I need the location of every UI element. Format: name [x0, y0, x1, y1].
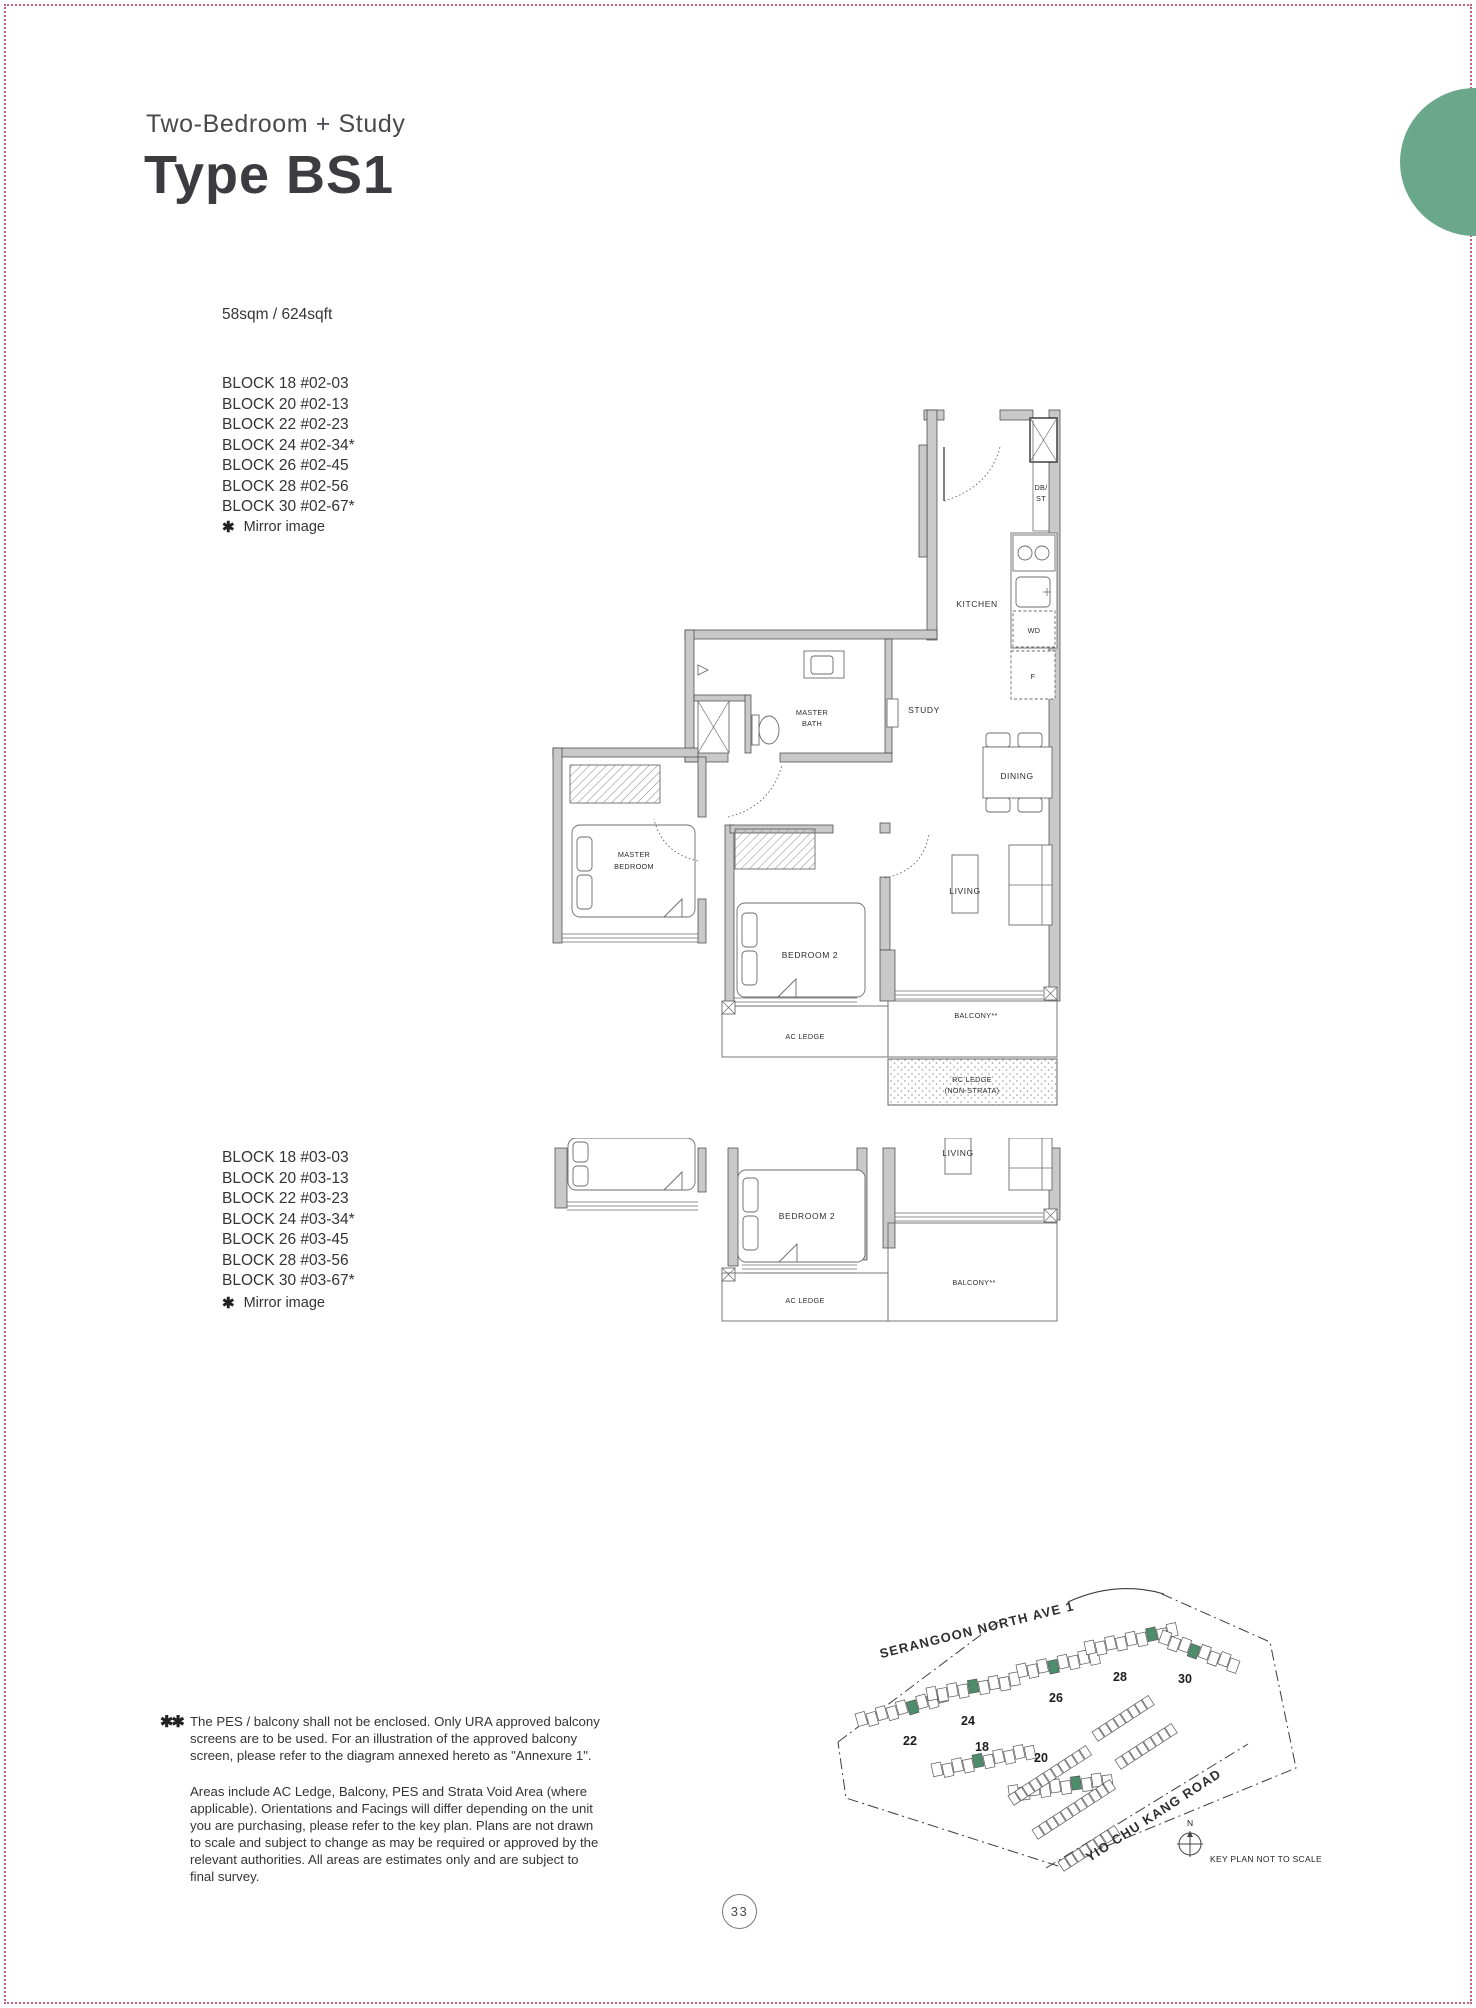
- label-fridge: F: [1031, 672, 1036, 681]
- mirror-note-text: Mirror image: [244, 519, 325, 535]
- pillow: [743, 1216, 758, 1250]
- room-label-kitchen: KITCHEN: [956, 599, 998, 609]
- toilet-tank: [752, 715, 759, 745]
- master-bed-partial: [568, 1138, 695, 1190]
- block-stack-item: BLOCK 26 #02-45: [222, 456, 355, 477]
- svg-text:28: 28: [1113, 1670, 1127, 1684]
- label-rc-ledge-2: (NON-STRATA): [945, 1086, 1000, 1095]
- coffee-table: [952, 855, 978, 913]
- page-number: 33: [731, 1904, 748, 1919]
- living-furniture: [952, 845, 1052, 925]
- unit-area: 58sqm / 624sqft: [222, 306, 332, 324]
- block-stack-list-level2: BLOCK 18 #02-03 BLOCK 20 #02-13 BLOCK 22…: [222, 374, 355, 518]
- room-label-master-bath-2: BATH: [802, 719, 822, 728]
- entry-door-arc: [944, 447, 1000, 501]
- double-asterisk-marker: ✱✱: [160, 1712, 183, 1732]
- road-label-serangoon: SERANGOON NORTH AVE 1: [878, 1598, 1076, 1661]
- compass-icon: N: [1177, 1818, 1203, 1857]
- label-rc-ledge-1: RC LEDGE: [952, 1075, 992, 1084]
- block-stack-list-level3: BLOCK 18 #03-03 BLOCK 20 #03-13 BLOCK 22…: [222, 1148, 355, 1292]
- asterisk-star-icon: ✱: [222, 1294, 235, 1312]
- room-label-living: LIVING: [949, 886, 980, 896]
- label-ac-ledge: AC LEDGE: [785, 1296, 824, 1305]
- page-number-badge: 33: [722, 1894, 757, 1929]
- mirror-image-note: ✱ Mirror image: [222, 518, 325, 536]
- pillow: [742, 913, 757, 947]
- svg-text:26: 26: [1049, 1691, 1063, 1705]
- balcony-outline: [888, 1001, 1057, 1057]
- room-label-dining: DINING: [1000, 771, 1033, 781]
- block-stack-item: BLOCK 24 #02-34*: [222, 436, 355, 457]
- compass-north-label: N: [1187, 1818, 1193, 1828]
- block-stack-item: BLOCK 18 #03-03: [222, 1148, 355, 1169]
- room-label-master-bedroom-2: BEDROOM: [614, 862, 654, 871]
- site-boundary: [838, 1594, 1296, 1866]
- master-bedroom-window: [567, 1202, 698, 1210]
- room-label-master-bath-1: MASTER: [796, 708, 828, 717]
- bath-door-arc: [728, 765, 782, 817]
- study-desk: [887, 699, 898, 727]
- room-label-st: ST: [1036, 494, 1046, 503]
- shaft-box: [1030, 418, 1057, 462]
- label-balcony: BALCONY**: [954, 1011, 997, 1020]
- wardrobe: [735, 829, 815, 869]
- label-ac-ledge: AC LEDGE: [785, 1032, 824, 1041]
- bedroom2-window: [742, 1265, 857, 1273]
- block-stack-item: BLOCK 28 #02-56: [222, 477, 355, 498]
- label-wd: WD: [1028, 626, 1041, 635]
- room-label-living: LIVING: [942, 1148, 973, 1158]
- footnote-balcony: The PES / balcony shall not be enclosed.…: [190, 1713, 600, 1764]
- toilet-bowl: [759, 716, 779, 744]
- living-furniture: [945, 1138, 1052, 1190]
- svg-text:20: 20: [1034, 1751, 1048, 1765]
- page-title: Type BS1: [144, 144, 394, 206]
- footnote-areas: Areas include AC Ledge, Balcony, PES and…: [190, 1783, 600, 1885]
- block-stack-item: BLOCK 20 #03-13: [222, 1169, 355, 1190]
- shower-head-icon: [698, 665, 708, 675]
- asterisk-star-icon: ✱: [222, 518, 235, 536]
- floor-plan-level2: DB/ ST WD F KITCHEN STUDY MASTER BATH: [546, 393, 1066, 1108]
- floor-plan-level3-partial: BEDROOM 2 LIVING AC LEDGE BALCONY**: [546, 1138, 1066, 1323]
- svg-text:24: 24: [961, 1714, 975, 1728]
- sofa: [1009, 1138, 1052, 1190]
- keyplan-note: KEY PLAN NOT TO SCALE: [1210, 1854, 1322, 1864]
- pillow: [577, 875, 592, 909]
- room-label-bedroom2: BEDROOM 2: [779, 1211, 835, 1221]
- master-bath-fixtures: [698, 651, 844, 817]
- wardrobe: [570, 765, 660, 803]
- block-stack-item: BLOCK 20 #02-13: [222, 395, 355, 416]
- block-stack-item: BLOCK 24 #03-34*: [222, 1210, 355, 1231]
- bedroom2-window: [734, 998, 857, 1006]
- block-stack-item: BLOCK 18 #02-03: [222, 374, 355, 395]
- block-stack-item: BLOCK 28 #03-56: [222, 1251, 355, 1272]
- accent-circle: [1400, 88, 1476, 236]
- label-balcony: BALCONY**: [952, 1278, 995, 1287]
- svg-text:18: 18: [975, 1740, 989, 1754]
- balcony-sliding-door: [895, 1213, 1043, 1221]
- room-label-db: DB/: [1034, 483, 1048, 492]
- block-stack-item: BLOCK 26 #03-45: [222, 1230, 355, 1251]
- bedroom2-door-arc: [885, 834, 929, 878]
- master-bedroom-furniture: [570, 765, 698, 917]
- balcony-sliding-door: [895, 991, 1043, 999]
- road-curve: [1068, 1589, 1164, 1602]
- unit-type-subtitle: Two-Bedroom + Study: [146, 110, 405, 139]
- key-plan: 22242628301820 SERANGOON NORTH AVE 1 YIO…: [818, 1572, 1348, 1882]
- basin: [811, 656, 833, 674]
- room-label-bedroom2: BEDROOM 2: [782, 950, 838, 960]
- block-stack-item: BLOCK 22 #03-23: [222, 1189, 355, 1210]
- svg-text:30: 30: [1178, 1672, 1192, 1686]
- pillow: [577, 837, 592, 871]
- bedroom2-furniture: [735, 829, 929, 997]
- balcony-outline: [888, 1223, 1057, 1321]
- block-stack-item: BLOCK 30 #02-67*: [222, 497, 355, 518]
- master-bedroom-window: [562, 934, 698, 942]
- room-label-master-bedroom-1: MASTER: [618, 850, 650, 859]
- pillow: [743, 1178, 758, 1212]
- block-stack-item: BLOCK 30 #03-67*: [222, 1271, 355, 1292]
- svg-text:22: 22: [903, 1734, 917, 1748]
- block-stack-item: BLOCK 22 #02-23: [222, 415, 355, 436]
- mirror-note-text: Mirror image: [244, 1295, 325, 1311]
- pillow: [742, 951, 757, 985]
- room-label-study: STUDY: [908, 705, 940, 715]
- mirror-image-note: ✱ Mirror image: [222, 1294, 325, 1312]
